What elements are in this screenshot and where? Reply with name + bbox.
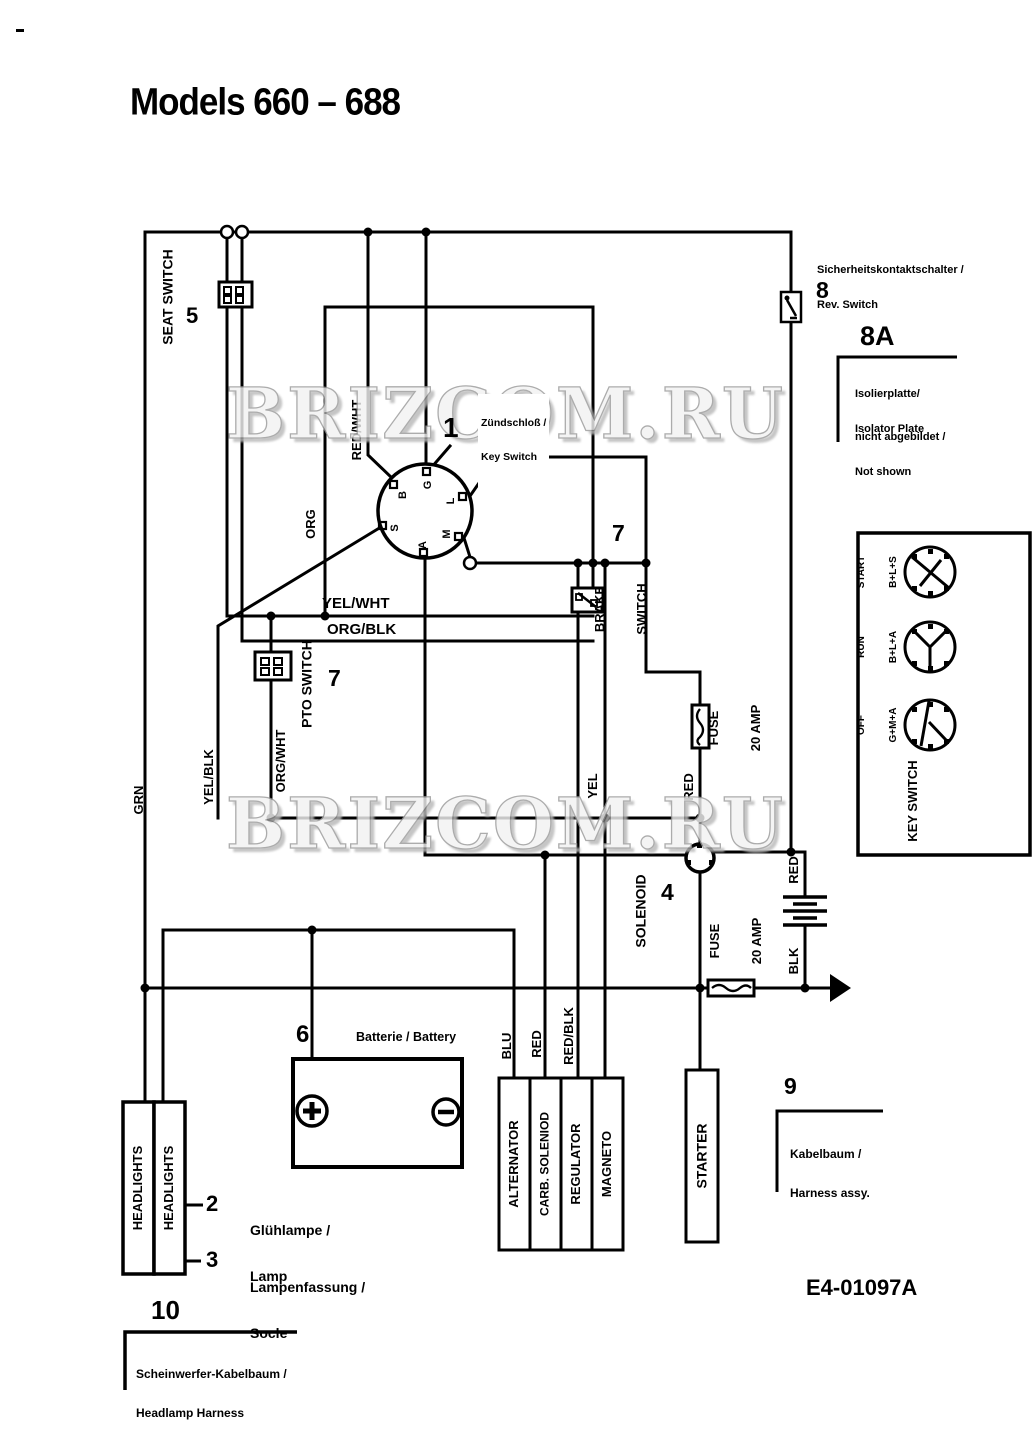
key-position-run-name: RUN — [856, 631, 867, 663]
battery-number: 6 — [296, 1022, 309, 1048]
key-switch-caption-en: Key Switch — [481, 452, 546, 463]
solenoid-label: SOLENOID — [633, 874, 648, 947]
callout-socket-number: 3 — [206, 1248, 218, 1272]
wiring-diagram-page: BRIZCOM.RU BRIZCOM.RU Models 660 – 688 S… — [0, 0, 1032, 1446]
wire-label-grn: GRN — [132, 786, 146, 815]
watermark-text: BRIZCOM.RU — [226, 782, 785, 865]
key-position-run-label: RUN B+L+A — [835, 631, 921, 663]
fuse-lower-symbol — [708, 980, 754, 996]
battery-box — [293, 1059, 462, 1167]
brake-switch-label: BRAKE SWITCH — [565, 583, 677, 634]
battery-caption: Batterie / Battery — [356, 1031, 456, 1045]
fuse-lower-label-line2: 20 AMP — [750, 918, 764, 964]
key-terminal-m: M — [442, 529, 454, 538]
rev-switch-number: 8 — [816, 278, 829, 303]
key-position-off-contacts: G+M+A — [889, 707, 900, 742]
callout-headlamp-harness-number: 10 — [151, 1296, 180, 1324]
ground-arrow-icon — [830, 974, 851, 1002]
fuse-upper-label-line2: 20 AMP — [749, 705, 763, 751]
key-terminal-s: S — [390, 524, 402, 531]
callout-headlamp-harness-de: Scheinwerfer-Kabelbaum / — [136, 1368, 287, 1381]
headlight-right-label: HEADLIGHTS — [162, 1146, 176, 1231]
wire-label-org: ORG — [304, 509, 318, 539]
brake-switch-label-line2: SWITCH — [635, 583, 649, 634]
page-title: Models 660 – 688 — [130, 82, 400, 123]
callout-lamp-number: 2 — [206, 1192, 218, 1216]
component-regulator-label: REGULATOR — [569, 1123, 583, 1204]
fuse-lower-label-line1: FUSE — [708, 918, 722, 964]
key-terminal-l: L — [446, 498, 458, 505]
isolator-note-shown: nicht abgebildet / Not shown — [855, 408, 945, 503]
seat-switch-number: 5 — [186, 304, 198, 328]
key-terminal-g: G — [423, 481, 435, 490]
component-alternator-label: ALTERNATOR — [507, 1120, 521, 1207]
wire-label-org-blk: ORG/BLK — [327, 622, 396, 638]
callout-harness-text: Kabelbaum / Harness assy. — [790, 1122, 870, 1226]
rev-switch-caption-de: Sicherheitskontaktschalter / — [817, 265, 964, 277]
isolator-note-de: Isolierplatte/ — [855, 389, 924, 401]
key-position-off-name: OFF — [856, 707, 867, 742]
wire-label-yel-blk: YEL/BLK — [202, 749, 216, 805]
key-position-start-contacts: B+L+S — [889, 556, 900, 589]
key-position-off-label: OFF G+M+A — [835, 707, 921, 742]
callout-harness-en: Harness assy. — [790, 1187, 870, 1200]
pto-switch-connector — [255, 652, 291, 680]
wire-label-red-carb: RED — [530, 1030, 544, 1057]
key-positions-panel-label: KEY SWITCH — [906, 760, 920, 841]
brake-switch-label-line1: BRAKE — [593, 583, 607, 634]
fuse-lower-label: FUSE 20 AMP — [680, 918, 792, 964]
fuse-upper-label: FUSE 20 AMP — [679, 705, 791, 751]
isolator-note-shown-en: Not shown — [855, 467, 945, 479]
key-position-run-contacts: B+L+A — [889, 631, 900, 663]
key-position-start-name: START — [856, 556, 867, 589]
fuse-upper-label-line1: FUSE — [707, 705, 721, 751]
isolator-note-number: 8A — [860, 322, 895, 351]
pto-switch-number: 7 — [328, 666, 341, 691]
wire-label-red-blk: RED/BLK — [562, 1007, 576, 1065]
key-switch-caption: Zündschloß / Key Switch — [478, 394, 549, 487]
wire-label-blk: BLK — [787, 948, 801, 975]
callout-ticks — [185, 1205, 203, 1261]
pto-switch-label: PTO SWITCH — [299, 640, 314, 728]
wire-label-red-battery: RED — [787, 856, 801, 883]
component-magneto-label: MAGNETO — [600, 1131, 614, 1197]
key-terminal-a: A — [418, 541, 430, 549]
seat-switch-label: SEAT SWITCH — [160, 249, 175, 344]
callout-harness-de: Kabelbaum / — [790, 1148, 870, 1161]
part-number: E4-01097A — [806, 1276, 917, 1300]
callout-socket-en: Socle — [250, 1326, 365, 1341]
component-carb-solenoid-label: CARB. SOLENIOD — [539, 1112, 552, 1216]
wire-label-yel-wht: YEL/WHT — [322, 596, 390, 612]
headlight-left-label: HEADLIGHTS — [131, 1146, 145, 1231]
wires — [145, 232, 830, 1102]
key-position-start-label: START B+L+S — [835, 556, 921, 589]
rev-switch-symbol — [781, 292, 801, 322]
callout-headlamp-harness-text: Scheinwerfer-Kabelbaum / Headlamp Harnes… — [136, 1342, 287, 1446]
isolator-note-shown-de: nicht abgebildet / — [855, 432, 945, 444]
key-terminal-b: B — [398, 491, 410, 499]
callout-harness-number: 9 — [784, 1074, 797, 1099]
scan-artifact-dash — [16, 29, 24, 32]
key-switch-caption-de: Zündschloß / — [481, 418, 546, 429]
starter-label: STARTER — [694, 1123, 709, 1188]
callout-lamp-de: Glühlampe / — [250, 1223, 330, 1238]
rev-switch-caption-en: Rev. Switch — [817, 300, 964, 312]
key-switch-number: 1 — [443, 413, 459, 443]
brake-switch-number: 7 — [612, 521, 625, 546]
wire-label-blu: BLU — [500, 1033, 514, 1060]
callout-headlamp-harness-en: Headlamp Harness — [136, 1407, 287, 1420]
callout-socket-de: Lampenfassung / — [250, 1280, 365, 1295]
solenoid-number: 4 — [661, 880, 674, 905]
seat-switch-connector — [219, 282, 252, 307]
